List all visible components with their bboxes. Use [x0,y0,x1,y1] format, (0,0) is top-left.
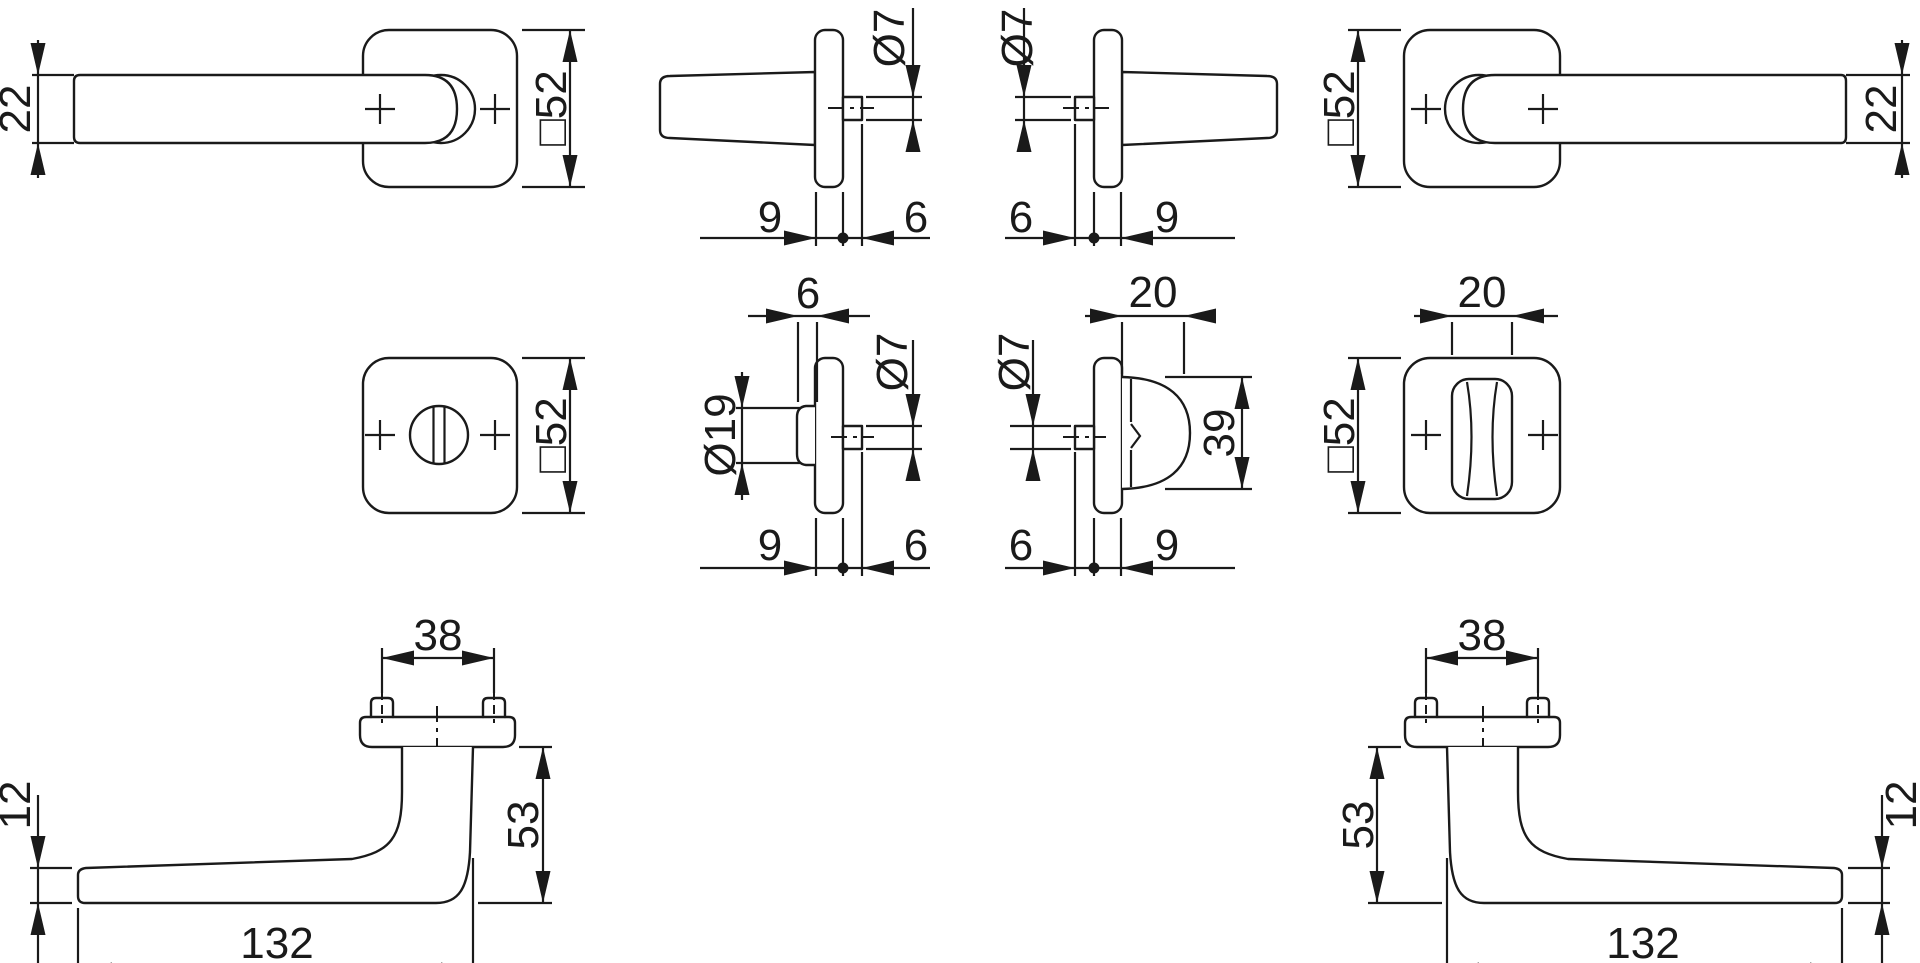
dim-label-dia7: Ø7 [865,9,914,68]
fig-handle-side-right: Ø7 6 9 [993,8,1277,246]
grip-outline [1122,72,1277,145]
technical-drawing: 22 □52 Ø7 9 6 [0,0,1920,963]
dim-label-53: 53 [499,801,548,850]
dim-label-sq52: □52 [527,70,576,146]
dim-label-132: 132 [240,919,313,963]
dim-cap-dia: Ø19 [696,372,800,500]
dim-label-22: 22 [1857,85,1906,134]
dim-label-dia7: Ø7 [993,9,1042,68]
dim-spindle-dia: Ø7 [990,333,1071,481]
fig-rose-turn-side: Ø7 20 39 6 9 [990,268,1252,576]
dim-screw-spacing: 38 [382,611,494,693]
fig-handle-front-right: □52 22 [1315,30,1910,187]
dim-rose-size: □52 [522,358,585,513]
dim-grip-width: 22 [0,40,74,178]
handle-outline [1447,747,1842,903]
fig-handle-profile-right: 38 53 12 132 [1334,611,1920,963]
dim-label-20: 20 [1129,268,1178,317]
dim-label-9: 9 [758,521,782,570]
dim-grip-height: 12 [1848,781,1920,963]
lever-outline [1463,75,1846,143]
dim-label-sq52: □52 [1315,70,1364,146]
dim-rose-size: □52 [522,30,585,187]
dim-label-9: 9 [1155,521,1179,570]
dim-label-9: 9 [1155,193,1179,242]
dim-spindle-dia: Ø7 [993,8,1071,152]
dim-label-6: 6 [1009,521,1033,570]
dim-label-dia7: Ø7 [990,333,1039,392]
rosette-side [1094,358,1122,513]
fig-rose-turn-front: 20 □52 [1315,268,1560,513]
dim-projection: 53 [478,747,552,903]
dim-spindle-dia: Ø7 [865,8,922,152]
dim-rose-size: □52 [1315,358,1401,513]
dim-label-sq52: □52 [1315,397,1364,473]
dim-label-6: 6 [796,269,820,318]
dim-grip-height: 12 [0,781,72,963]
fig-rose-release-side: 6 Ø19 Ø7 9 6 [696,269,930,576]
dim-label-38: 38 [414,611,463,660]
drawing-sheet: 22 □52 Ø7 9 6 [0,0,1920,963]
fig-handle-profile-left: 38 12 53 132 [0,611,552,963]
dim-label-38: 38 [1458,611,1507,660]
handle-outline [78,747,473,903]
thumbturn-knob [1452,379,1512,499]
dim-label-53: 53 [1334,801,1383,850]
rosette-side [815,358,843,513]
dim-label-9: 9 [758,193,782,242]
dim-label-22: 22 [0,85,40,134]
dim-label-6: 6 [904,521,928,570]
fig-rose-release-front: □52 [363,358,585,513]
fig-handle-side-left: Ø7 9 6 [660,8,930,246]
dim-label-12: 12 [0,781,40,830]
dim-label-sq52: □52 [527,397,576,473]
dim-label-dia7: Ø7 [868,333,917,392]
dim-cap-depth: 6 [748,269,870,402]
dim-label-39: 39 [1195,409,1244,458]
dim-rose-size: □52 [1315,30,1401,187]
dim-label-6: 6 [1009,193,1033,242]
dim-screw-spacing: 38 [1426,611,1538,693]
dim-label-6: 6 [904,193,928,242]
dim-label-12: 12 [1877,781,1920,830]
release-cap [797,406,815,465]
thumbturn-wing [1122,377,1190,489]
dim-grip-width: 22 [1846,40,1910,178]
dim-label-132: 132 [1606,919,1679,963]
fig-handle-front-left: 22 □52 [0,30,585,187]
dim-label-20: 20 [1458,268,1507,317]
grip-outline [660,72,815,145]
dim-label-dia19: Ø19 [696,393,745,476]
dim-projection: 53 [1334,747,1442,903]
dim-knob-width: 20 [1414,268,1558,355]
lever-outline [74,75,457,143]
dim-spindle-dia: Ø7 [866,333,922,481]
